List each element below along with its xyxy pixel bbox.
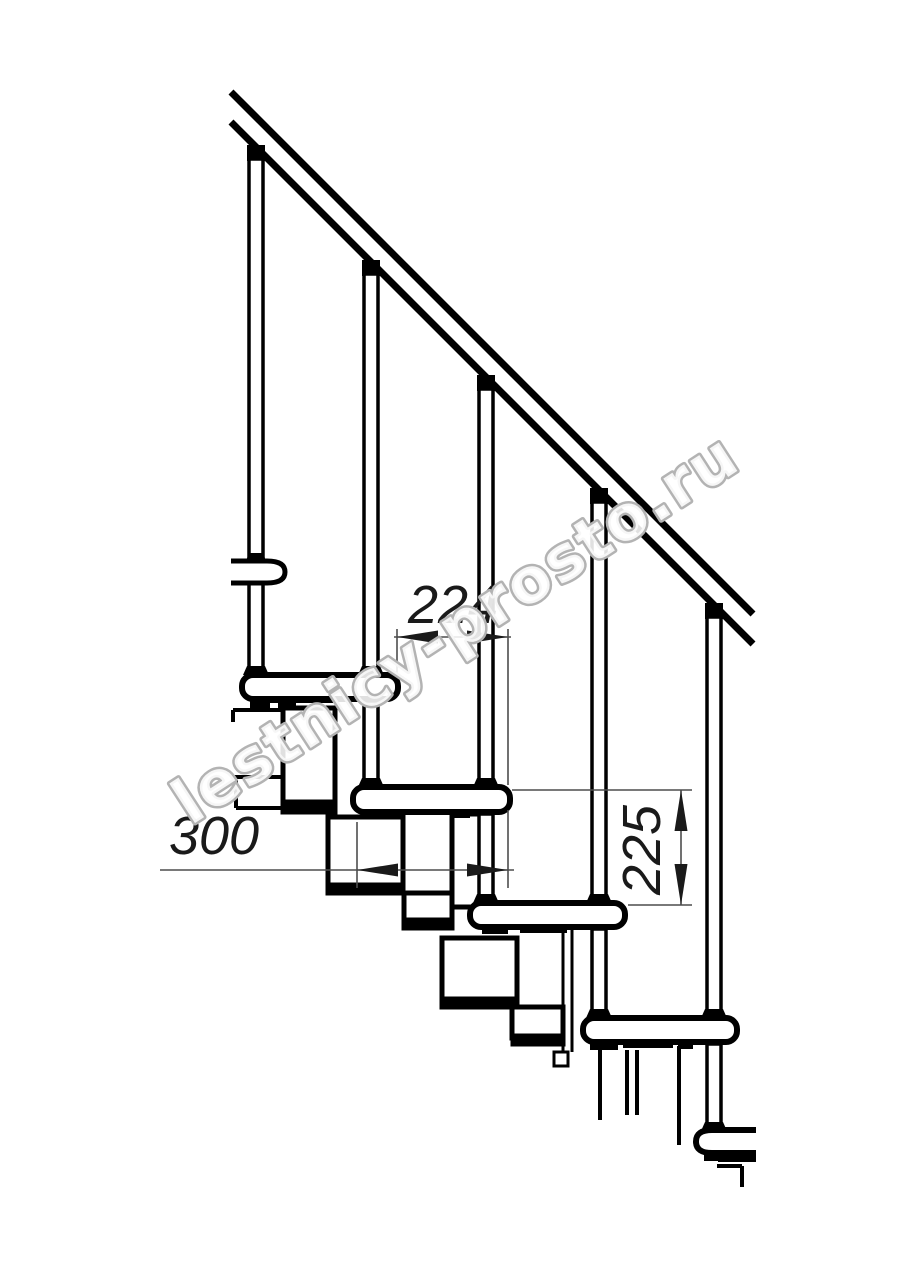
module-3-connector-base xyxy=(513,1036,563,1044)
baluster-5-rod-upper xyxy=(707,617,721,1011)
baluster-2-rod-upper xyxy=(364,274,378,668)
baluster-4-rod-lower xyxy=(592,929,606,1011)
tread-5 xyxy=(696,1130,756,1153)
baluster-3-rod-lower xyxy=(479,814,493,896)
module-lines-t4 xyxy=(600,1046,679,1145)
dimension-225-label: 225 xyxy=(612,804,672,896)
staircase-technical-drawing: 224 300 225 lestnicy-prosto.ru xyxy=(0,0,914,1280)
module-2 xyxy=(328,817,403,893)
tread-4 xyxy=(583,1018,737,1042)
baluster-5-rod-lower xyxy=(707,1044,721,1124)
drawing-page: 224 300 225 lestnicy-prosto.ru xyxy=(0,0,914,1280)
module-3-connector xyxy=(512,1007,563,1038)
module-1-base xyxy=(283,802,335,812)
module-2-base xyxy=(328,885,403,893)
module-lines-t5-break xyxy=(717,1166,742,1187)
tread-edge-on xyxy=(231,561,285,583)
tread-2 xyxy=(353,787,510,812)
baluster-1-rod xyxy=(249,159,263,668)
module-3-base xyxy=(442,999,517,1007)
arrow-down-icon xyxy=(675,864,688,905)
module-2-connector-base xyxy=(404,920,452,928)
arrow-up-icon xyxy=(675,790,688,831)
tread-3 xyxy=(470,903,625,927)
